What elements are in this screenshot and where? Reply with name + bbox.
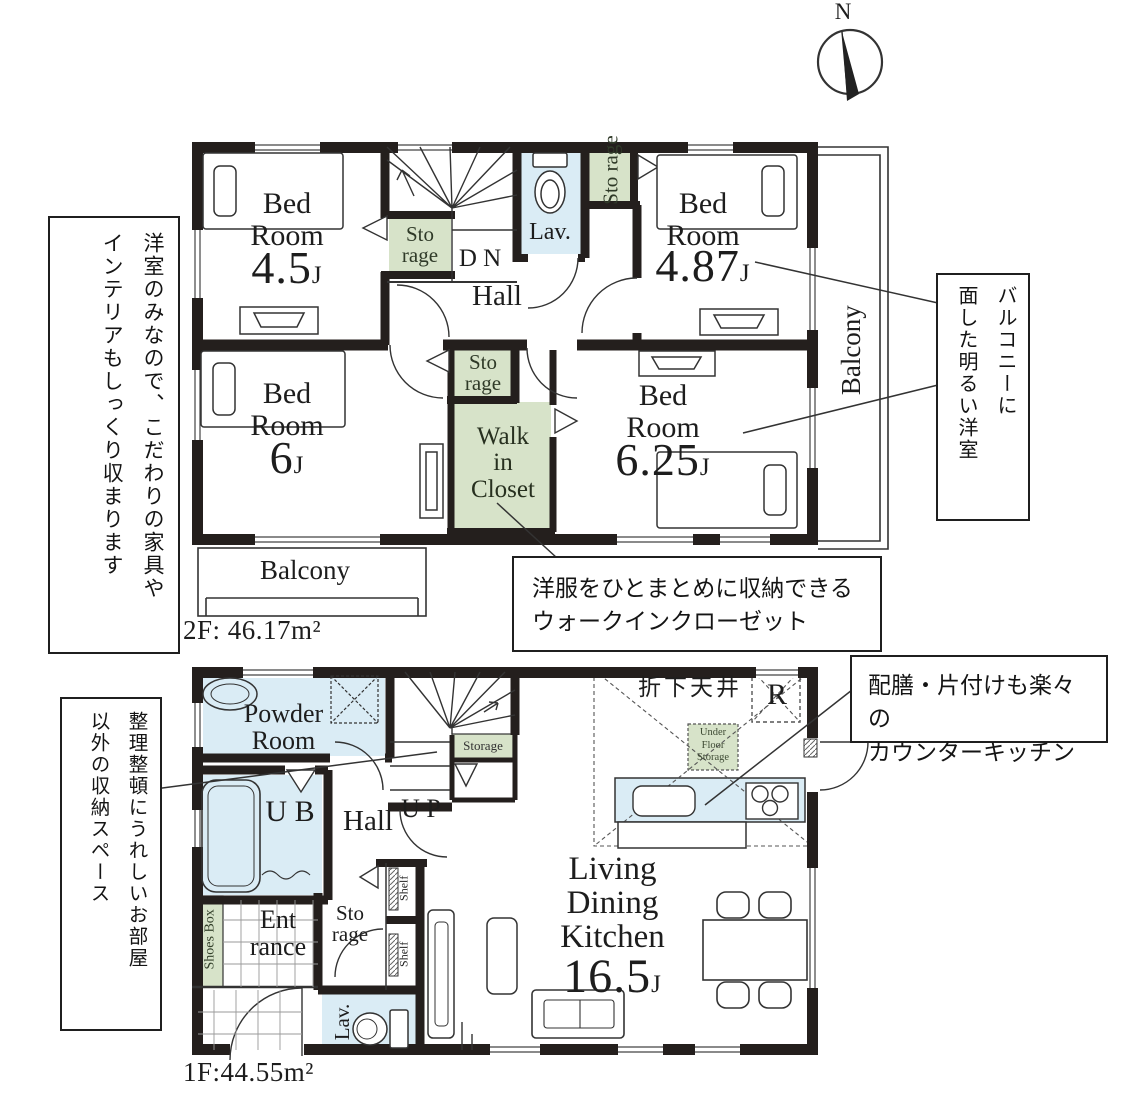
note-1f-left: 整理整頓にうれしいお部屋以外の収納スペース [60,697,162,1031]
dropped-ceiling-label: 折下天井 [630,675,750,699]
powder-room-label: PowderRoom [226,700,341,755]
lav-2f-label: Lav. [516,220,584,245]
toilet-icon [533,153,567,213]
stairs-dn-label: D N [448,246,512,272]
note-2f-closet: 洋服をひとまとめに収納できるウォークインクローゼット [512,556,882,652]
tv-board-icon [428,910,454,1038]
dining-set-icon [703,892,807,1008]
compass-north-label: N [828,0,858,24]
kitchen-sink-icon [633,786,695,816]
shoes-box-label: Shoes Box [204,891,219,987]
ub-label: U B [252,796,328,828]
counter-icon [618,822,746,848]
lav-1f-label: Lav. [331,993,353,1051]
room-size-bedroom487: 4.87J [628,242,778,290]
stove-icon [746,783,798,819]
storage-2f-top-label: Sto rage [600,149,621,205]
floor-plan-page: N Bed Room 4.5J Bed Room 4.87J Bed Room … [0,0,1144,1103]
door-stub-hatch [804,739,817,757]
note-2f-balcony: バルコニーに面した明るい洋室 [936,273,1030,521]
underfloor-storage-label: UnderFloorStorage [686,727,740,765]
hall-2f-label: Hall [452,281,542,311]
compass-icon [818,30,882,101]
storage-1f-label: Storage [318,903,382,946]
ldk-size-label: 16.5J [535,952,690,1002]
floor1-area-label: 1F:44.55m² [183,1058,423,1086]
walk-in-closet-label: WalkinCloset [456,424,550,503]
entrance-label: Entrance [232,906,324,961]
note-1f-kitchen: 配膳・片付けも楽々のカウンターキッチン [850,655,1108,743]
shelf-lower-label: Shelf [398,931,411,977]
room-size-bedroom6: 6J [222,434,352,482]
dresser-icon [700,309,778,335]
storage-2f-hall-label: Storage [389,224,451,267]
storage-2f-mid-label: Storage [452,352,514,395]
balcony-bottom-label: Balcony [240,556,370,584]
fridge-label: R [762,679,792,711]
furniture-icon [487,918,517,994]
shelf-upper-label: Shelf [398,865,411,911]
note-2f-left: 洋室のみなので、こだわりの家具やインテリアもしっくり収まります [48,216,180,654]
stairs-up-label: U P [390,795,452,822]
dresser-icon [240,307,318,334]
stair-storage-label: Storage [452,739,514,753]
room-size-bedroom625: 6.25J [588,436,738,484]
room-size-bedroom45: 4.5J [222,244,352,292]
toilet-icon [353,1010,408,1048]
sliding-panel-icon [420,444,443,518]
floor2-area-label: 2F: 46.17m² [183,616,423,644]
dresser-icon [639,351,715,376]
balcony-side-label: Balcony [837,285,865,415]
ldk-label: LivingDiningKitchen [540,852,685,954]
